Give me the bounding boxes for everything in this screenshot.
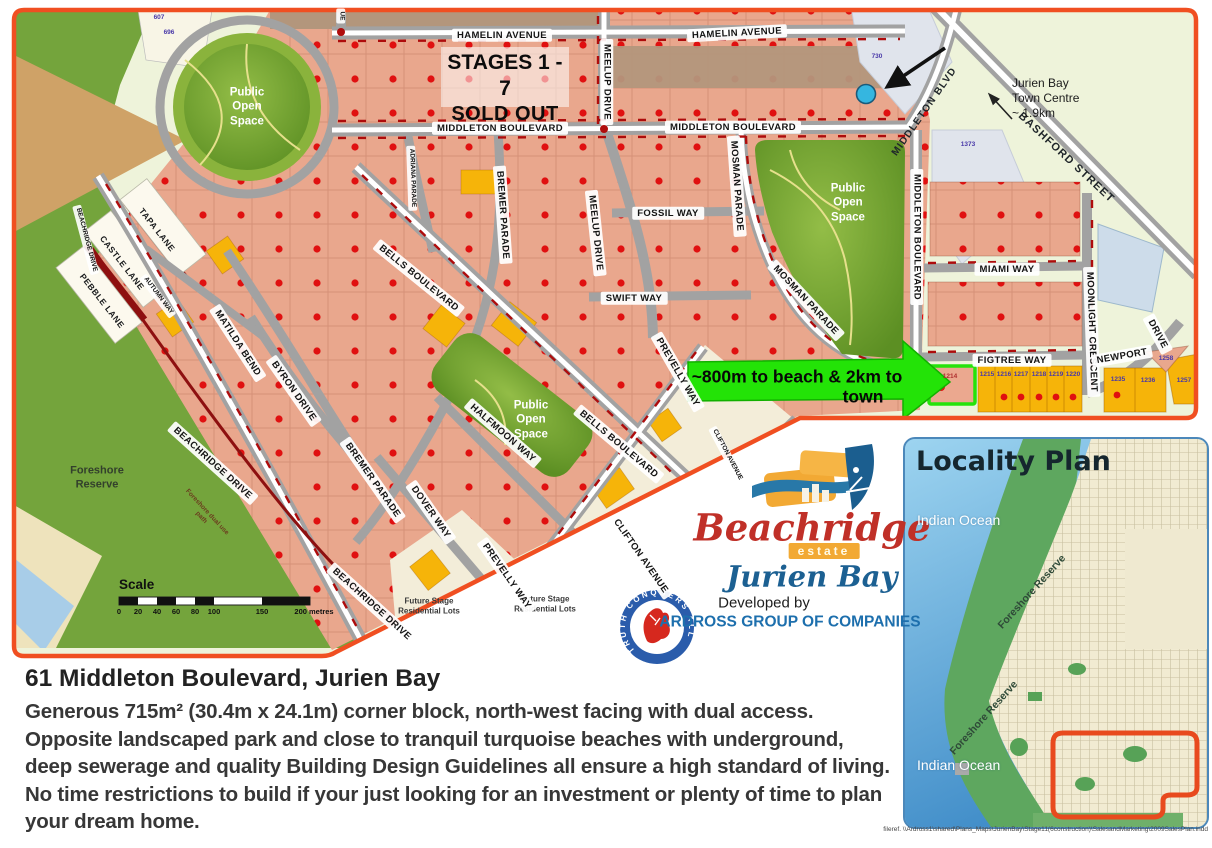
- lot-1219-label: 1219: [1049, 372, 1063, 379]
- street-label-middleton-vertical: MIDDLETON BOULEVARD: [911, 169, 924, 305]
- description-line-4: No time restrictions to build if your ju…: [25, 781, 915, 809]
- scale-tick-80: 80: [191, 608, 199, 616]
- sales-plan-page: TRUTH CONQUERS ALL STAGES 1 - 7 SOLD OUT…: [0, 0, 1212, 848]
- lot-1373-label: 1373: [961, 142, 975, 149]
- street-label-swift: SWIFT WAY: [601, 292, 668, 305]
- park-label-east: Public Open Space: [819, 181, 877, 224]
- scale-tick-0: 0: [117, 608, 121, 616]
- street-label-middleton-2: MIDDLETON BOULEVARD: [665, 121, 801, 134]
- lot-1236-label: 1236: [1141, 378, 1155, 385]
- developer-name: ARDROSS GROUP OF COMPANIES: [659, 614, 920, 630]
- town-centre-note: Jurien Bay Town Centre ~ 1.9km: [1012, 76, 1079, 121]
- stages-line1: STAGES 1 - 7: [441, 50, 569, 102]
- street-label-fossil: FOSSIL WAY: [632, 207, 704, 220]
- lot-1220-label: 1220: [1066, 372, 1080, 379]
- future-stage-label-west: Future Stage Residential Lots: [393, 597, 465, 618]
- description-line-2: Opposite landscaped park and close to tr…: [25, 726, 915, 754]
- scale-bar: [119, 597, 310, 605]
- street-label-stub: UE: [337, 8, 346, 23]
- lot-1214-label: 1214: [943, 374, 957, 381]
- lot-1216-label: 1216: [997, 372, 1011, 379]
- property-title: 61 Middleton Boulevard, Jurien Bay: [25, 664, 915, 694]
- description-line-5: your dream home.: [25, 808, 915, 836]
- beach-arrow-text-1: ~800m to beach & 2km to: [692, 368, 903, 386]
- description-line-1: Generous 715m² (30.4m x 24.1m) corner bl…: [25, 698, 915, 726]
- scale-tick-200: 200 metres: [294, 608, 333, 616]
- lot-1215-label: 1215: [980, 372, 994, 379]
- poi-marker: [857, 85, 876, 104]
- lot-730-label: 730: [872, 54, 883, 61]
- street-label-middleton-1: MIDDLETON BOULEVARD: [432, 122, 568, 135]
- street-label-hamelin-1: HAMELIN AVENUE: [452, 29, 552, 42]
- scale-tick-150: 150: [256, 608, 269, 616]
- lot-1218-label: 1218: [1032, 372, 1046, 379]
- estate-word-badge: estate: [789, 543, 860, 559]
- indian-ocean-label-1: Indian Ocean: [917, 513, 1000, 527]
- estate-name: Beachridge: [693, 510, 930, 547]
- street-label-figtree: FIGTREE WAY: [973, 354, 1052, 367]
- street-label-miami: MIAMI WAY: [975, 263, 1040, 276]
- description-line-3: deep sewerage and quality Building Desig…: [25, 753, 915, 781]
- indian-ocean-label-2: Indian Ocean: [917, 758, 1000, 772]
- scale-tick-60: 60: [172, 608, 180, 616]
- beachridge-logo-mark: [752, 444, 874, 510]
- scale-tick-100: 100: [208, 608, 221, 616]
- foreshore-reserve-label: Foreshore Reserve: [56, 464, 138, 493]
- developed-by-label: Developed by: [718, 596, 810, 611]
- estate-location: Jurien Bay: [727, 563, 898, 592]
- scale-tick-40: 40: [153, 608, 161, 616]
- lot-1235-label: 1235: [1111, 377, 1125, 384]
- locality-plan-title: Locality Plan: [916, 448, 1111, 475]
- lot-607-label: 607: [154, 15, 165, 22]
- lot-1257-label: 1257: [1177, 378, 1191, 385]
- lot-1258-label: 1258: [1159, 356, 1173, 363]
- park-label-west: Public Open Space: [218, 85, 276, 128]
- scale-tick-20: 20: [134, 608, 142, 616]
- lot-1217-label: 1217: [1014, 372, 1028, 379]
- beach-arrow-text-2: town: [843, 388, 884, 406]
- scale-title: Scale: [119, 578, 154, 592]
- stages-sold-out-banner: STAGES 1 - 7 SOLD OUT: [441, 47, 569, 107]
- street-label-meelup-1: MEELUP DRIVE: [601, 39, 614, 125]
- lot-696-label: 696: [164, 30, 175, 37]
- property-description: 61 Middleton Boulevard, Jurien Bay Gener…: [25, 664, 915, 836]
